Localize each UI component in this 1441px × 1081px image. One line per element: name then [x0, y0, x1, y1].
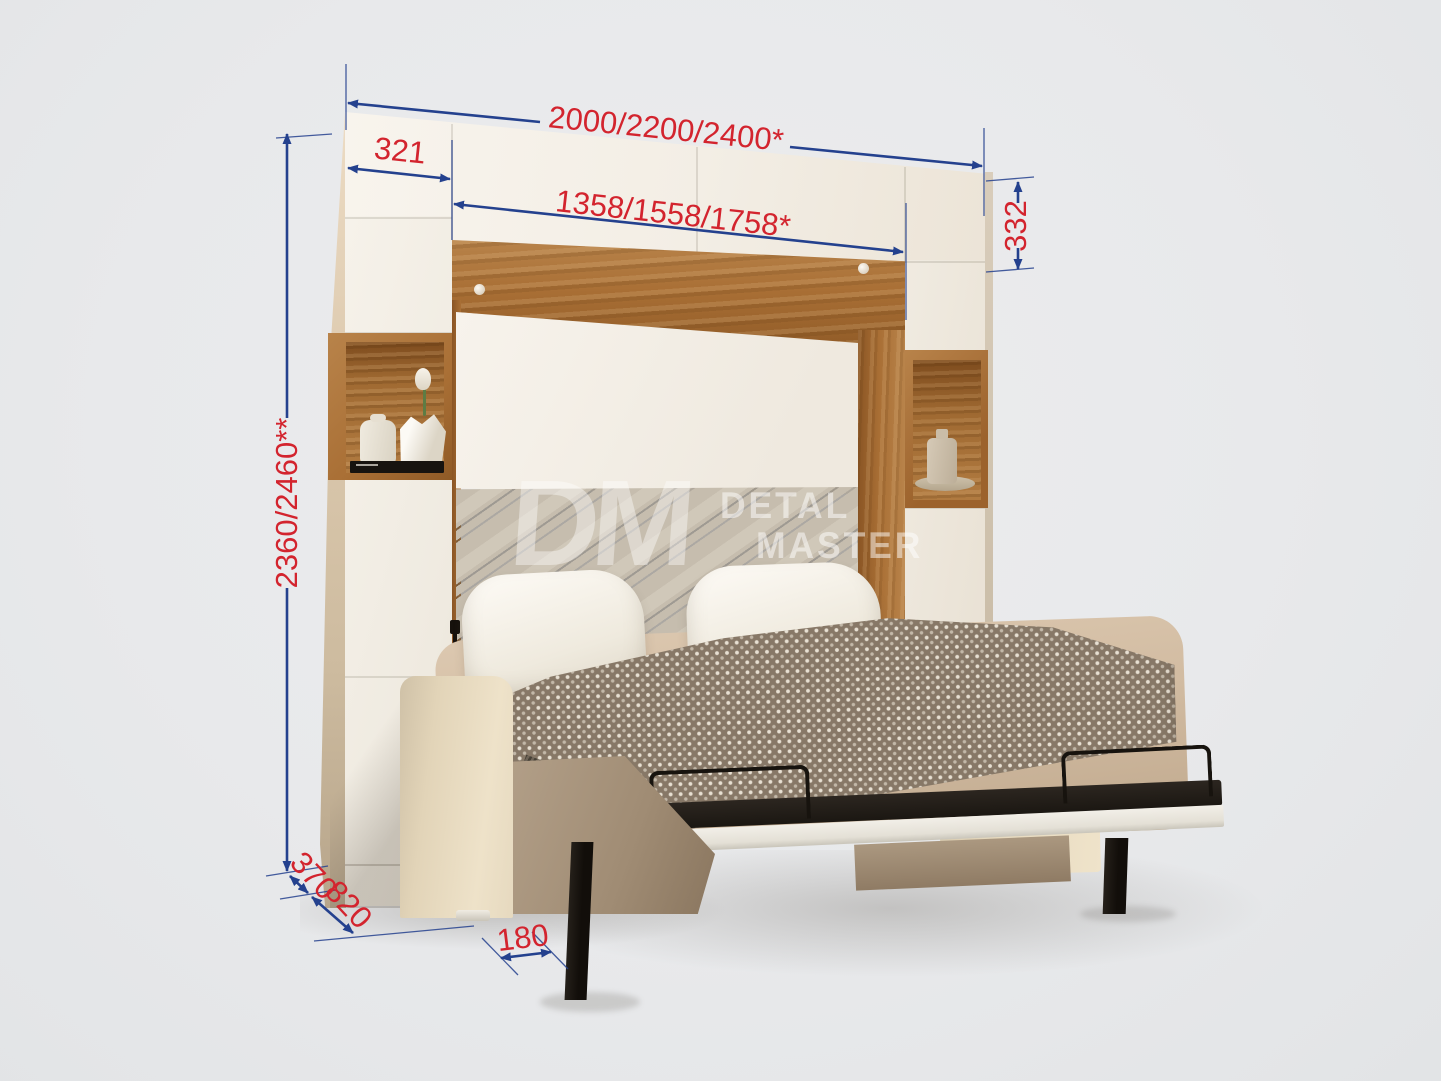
dim-label-leg-offset: 180 — [495, 917, 551, 958]
dim-label-top-height: 332 — [998, 200, 1033, 252]
dim-line-left-width — [348, 168, 450, 179]
dim-label-inner-width: 1358/1558/1758* — [554, 183, 793, 244]
ext-line — [314, 926, 474, 941]
dim-line-total-width — [790, 147, 982, 166]
dim-line-total-width — [348, 103, 540, 122]
ext-line — [986, 177, 1034, 181]
dim-label-total-width: 2000/2200/2400* — [547, 99, 786, 158]
product-dimension-diagram: DM DETAL MASTER 2000/2200/2400* 321 — [0, 0, 1441, 1081]
ext-line — [276, 134, 332, 138]
dim-label-total-height: 2360/2460** — [269, 418, 304, 589]
dimension-annotations: 2000/2200/2400* 321 1358/1558/1758* 332 … — [0, 0, 1441, 1081]
ext-line — [986, 268, 1034, 272]
dim-label-left-width: 321 — [373, 130, 428, 170]
